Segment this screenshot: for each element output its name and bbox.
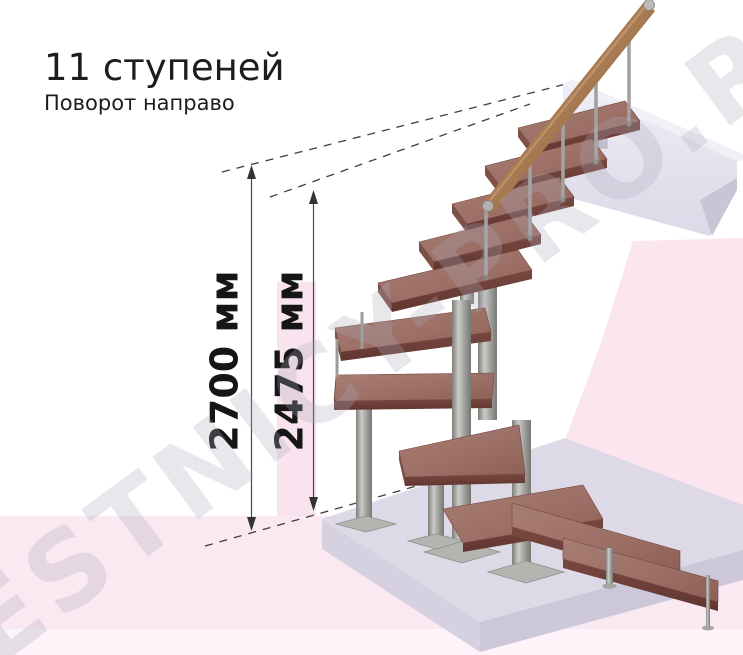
diagram-canvas: 2700 мм 2475 мм 11 ступеней Поворот напр…: [0, 0, 743, 655]
page-subtitle: Поворот направо: [44, 91, 235, 115]
support-post: [606, 548, 613, 586]
handrail-top-ferrule: [644, 0, 655, 11]
floor-light-strip: [0, 629, 743, 655]
staircase-diagram: 2700 мм 2475 мм 11 ступеней Поворот напр…: [0, 0, 743, 655]
support-post: [706, 575, 710, 628]
page-title: 11 ступеней: [44, 46, 285, 89]
support-post-base: [603, 583, 617, 589]
support-post-base: [702, 626, 714, 631]
